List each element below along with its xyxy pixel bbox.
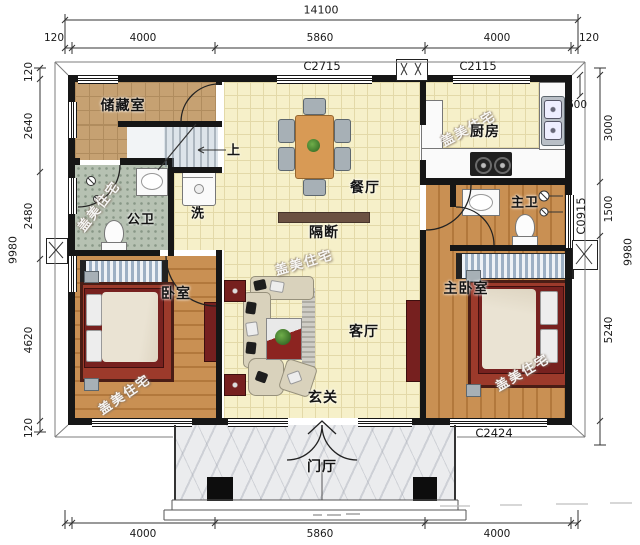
dining-chair-icon: [278, 147, 295, 171]
dim-top-seg: 4000: [130, 32, 157, 44]
wall-segment: [216, 250, 222, 418]
dim-bottom-seg: 4000: [130, 528, 157, 540]
dining-chair-icon: [334, 147, 351, 171]
wall-right: [565, 75, 572, 425]
room-label-wash: 洗: [191, 203, 205, 222]
window-symbol: [277, 75, 372, 84]
room-label-bedroom: 卧室: [161, 283, 191, 303]
dim-bottom-seg: 4000: [484, 528, 511, 540]
dim-right-seg: 1500: [603, 196, 615, 223]
cushion-icon: [245, 321, 259, 337]
pillow-icon: [86, 330, 102, 362]
room-label-kitchen: 厨房: [470, 121, 500, 141]
window-symbol: [68, 102, 77, 138]
stairs-up-label: 上: [227, 140, 241, 159]
dim-left-seg: 4620: [23, 327, 35, 354]
dim-top-total: 14100: [304, 4, 339, 17]
window-symbol: [228, 418, 288, 427]
wall-segment: [450, 185, 456, 207]
window-symbol: [68, 178, 77, 214]
wall-segment: [420, 178, 565, 185]
sink-basin-icon: [469, 194, 493, 211]
storage-floor-lower: [75, 125, 127, 160]
wall-segment: [450, 245, 565, 251]
window-code-c2115: C2115: [459, 59, 496, 73]
dining-chair-icon: [278, 119, 295, 143]
window-symbol: [453, 75, 530, 84]
dim-bottom-seg: 5860: [307, 528, 334, 540]
dim-top-seg: 5860: [307, 32, 334, 44]
speaker-square-icon: [224, 374, 246, 396]
plant-icon: [275, 329, 291, 345]
dim-right-seg: 5240: [603, 317, 615, 344]
dim-left-seg: 2480: [23, 203, 35, 230]
room-label-master-bath: 主卫: [511, 192, 539, 211]
room-label-master-bedroom: 主卧室: [444, 278, 489, 298]
wall-segment: [174, 167, 222, 173]
wall-segment: [118, 121, 222, 127]
wall-segment: [420, 75, 426, 125]
plant-icon: [307, 139, 320, 152]
window-code-c2424: C2424: [475, 426, 512, 440]
dining-chair-icon: [303, 179, 326, 196]
wall-segment: [420, 230, 426, 418]
room-label-dining: 餐厅: [350, 177, 380, 197]
dim-right-seg: 3000: [603, 115, 615, 142]
wall-segment: [120, 158, 174, 165]
dining-chair-icon: [334, 119, 351, 143]
entry-door-opening: [288, 418, 358, 425]
window-symbol: [92, 418, 192, 427]
dim-left-seg: 120: [23, 62, 35, 82]
floor-plan-canvas: 盖美住宅 盖美住宅 盖美住宅 盖美住宅 盖美住宅 储藏室 公卫 洗 上 餐厅 隔…: [0, 0, 640, 545]
nightstand-icon: [84, 378, 99, 391]
storage-floor: [75, 82, 216, 125]
burner-icon: [494, 157, 511, 174]
washer-panel-line: [183, 177, 213, 178]
porch-column: [413, 477, 437, 501]
dim-left-total: 9980: [7, 236, 20, 264]
dim-left-seg: 2640: [23, 113, 35, 140]
sink-basin-icon: [141, 173, 163, 190]
window-symbol: [358, 418, 412, 427]
window-symbol: [68, 256, 77, 292]
washer-knob-icon: [194, 184, 204, 194]
dim-right-total: 9980: [622, 238, 635, 266]
room-label-storage: 储藏室: [101, 95, 146, 115]
sink-bowl-icon: [544, 121, 562, 140]
cushion-icon: [245, 342, 256, 355]
nightstand-icon: [84, 271, 99, 283]
dim-right-seg: 600: [567, 99, 587, 111]
room-label-public-bath: 公卫: [127, 209, 155, 228]
dining-chair-icon: [303, 98, 326, 115]
cushion-icon: [269, 280, 285, 293]
pillow-icon: [540, 291, 558, 325]
speaker-square-icon: [224, 280, 246, 302]
flue-box-icon: [572, 240, 598, 270]
flue-box-icon: [46, 238, 68, 264]
wall-segment: [68, 158, 80, 165]
room-label-porch: 门厅: [307, 456, 337, 476]
wall-segment: [216, 75, 222, 85]
pillow-icon: [86, 294, 102, 326]
dim-top-seg: 120: [579, 32, 599, 44]
bed-duvet-icon: [102, 292, 158, 362]
window-symbol: [78, 75, 118, 84]
flue-box-icon: [396, 59, 428, 81]
dim-top-seg: 120: [44, 32, 64, 44]
burner-icon: [475, 157, 492, 174]
nightstand-icon: [466, 384, 481, 397]
window-code-c0915: C0915: [574, 197, 588, 234]
dim-left-seg: 120: [23, 418, 35, 438]
wall-segment: [68, 250, 160, 256]
dim-top-seg: 4000: [484, 32, 511, 44]
sink-bowl-icon: [544, 100, 562, 119]
cushion-icon: [245, 301, 257, 314]
room-label-living: 客厅: [349, 321, 379, 341]
room-label-partition: 隔断: [309, 222, 339, 242]
room-label-entry: 玄关: [308, 387, 338, 407]
window-code-c2715: C2715: [303, 59, 340, 73]
porch-column: [207, 477, 233, 501]
